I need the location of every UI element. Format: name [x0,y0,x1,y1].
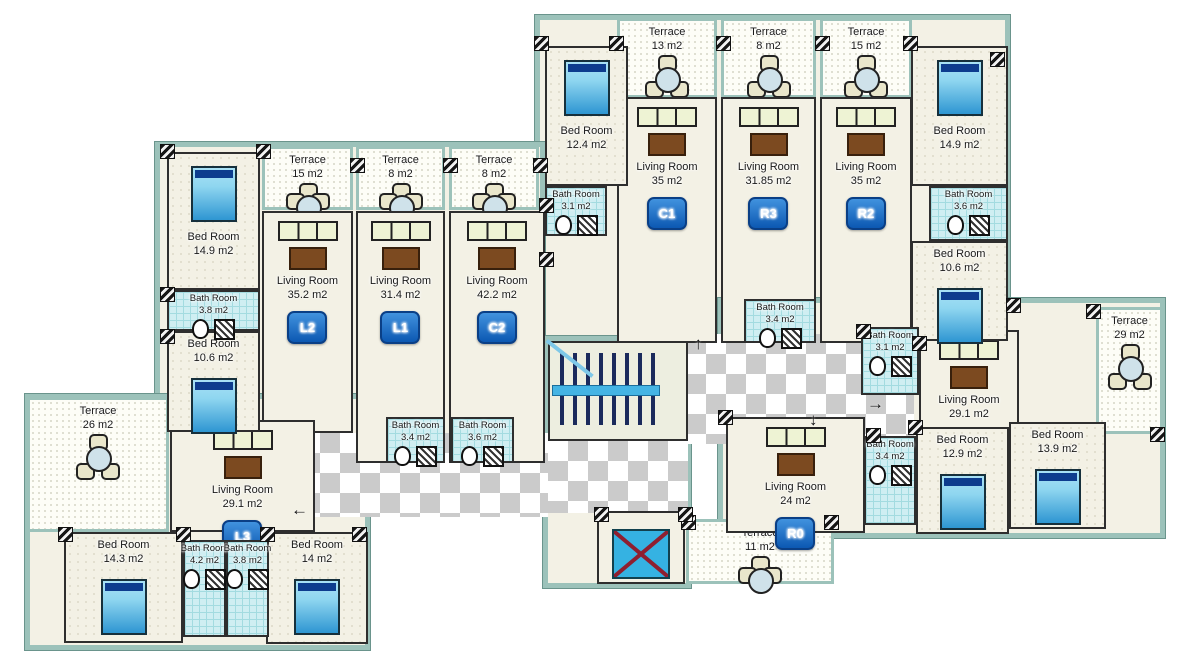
room-name: Living Room [277,275,338,289]
shower-icon [248,569,269,590]
room-name: Bed Room [188,231,240,245]
bed-furniture [564,56,610,120]
bath-furniture [192,319,235,340]
unit-badge-c1: C1 [647,197,687,230]
wall-column-hatch [350,158,365,173]
living-furniture [739,107,799,156]
room-name: Living Room [738,161,799,175]
terrace-table-icon [847,60,885,96]
wall-column-hatch [1006,298,1021,313]
room-label: Bath Room3.6 m2 [459,420,507,444]
toilet-icon [759,328,776,348]
room-area: 15 m2 [289,168,326,182]
room-name: Bath Room [552,189,600,201]
room-area: 29.1 m2 [938,408,999,422]
wall-column-hatch [160,329,175,344]
room-bath: Bath Room3.4 m2 [864,436,916,525]
room-area: 10.6 m2 [934,262,986,276]
wall-column-hatch [990,52,1005,67]
terrace-table-icon [289,188,327,208]
bed-furniture [191,162,237,226]
bath-furniture [869,356,912,377]
wall-column-hatch [443,158,458,173]
wall-column-hatch [594,507,609,522]
bed-icon [101,579,147,635]
room-name: Bed Room [188,338,240,352]
room-name: Bath Room [181,543,229,555]
room-area: 8 m2 [476,168,513,182]
room-name: Bed Room [291,539,343,553]
room-area: 13 m2 [649,40,686,54]
toilet-icon [192,319,209,339]
room-name: Bed Room [1032,429,1084,443]
room-area: 35 m2 [636,175,697,189]
room-label: Bath Room3.1 m2 [866,330,914,354]
wall-column-hatch [903,36,918,51]
table-icon [1118,356,1144,382]
room-area: 42.2 m2 [466,289,527,303]
bed-furniture [101,575,147,639]
wall-column-hatch [856,324,871,339]
room-area: 3.8 m2 [190,305,238,317]
room-living-r2: Living Room35 m2R2 [820,97,912,343]
toilet-icon [461,446,478,466]
wall-column-hatch [352,527,367,542]
room-area: 12.9 m2 [937,448,989,462]
wall-column-hatch [1086,304,1101,319]
room-name: Terrace [289,154,326,168]
toilet-icon [226,569,243,589]
room-bath: Bath Room3.6 m2 [929,186,1008,241]
bed-furniture [294,575,340,639]
shower-icon [416,446,437,467]
room-label: Bath Room3.6 m2 [945,189,993,213]
room-area: 3.1 m2 [866,342,914,354]
room-label: Bed Room10.6 m2 [934,248,986,276]
room-area: 3.4 m2 [392,432,440,444]
wall-column-hatch [815,36,830,51]
table-icon [86,446,112,472]
room-label: Terrace29 m2 [1111,315,1148,343]
room-bath: Bath Room3.4 m2 [386,417,445,463]
room-bath: Bath Room3.4 m2 [744,299,816,343]
room-area: 24 m2 [765,495,826,509]
room-bed: Bed Room14.3 m2 [64,532,183,643]
sofa-icon [836,107,896,127]
bath-furniture [947,215,990,236]
table-icon [748,568,774,594]
bed-icon [937,60,983,116]
living-furniture [278,221,338,270]
room-label: Bath Room3.4 m2 [756,302,804,326]
room-label: Bed Room12.4 m2 [561,125,613,153]
entry-arrow-icon: ↓ [809,410,818,430]
sofa-icon [637,107,697,127]
room-name: Terrace [649,26,686,40]
room-bath: Bath Room3.8 m2 [226,540,269,637]
unit-badge-r0: R0 [775,517,815,550]
terrace-table-icon [741,561,779,582]
bed-icon [564,60,610,116]
bed-furniture [937,284,983,348]
room-name: Terrace [382,154,419,168]
room-label: Terrace15 m2 [848,26,885,54]
stairs-handrail [552,385,660,396]
room-area: 35.2 m2 [277,289,338,303]
living-furniture [637,107,697,156]
wall-column-hatch [824,515,839,530]
shower-icon [891,356,912,377]
wall-column-hatch [256,144,271,159]
room-name: Terrace [750,26,787,40]
room-label: Living Room35 m2R2 [835,161,896,230]
sofa-icon [766,427,826,447]
room-area: 35 m2 [835,175,896,189]
room-name: Bath Room [224,543,272,555]
toilet-icon [947,215,964,235]
bath-furniture [869,465,912,486]
wall-column-hatch [160,287,175,302]
wall-column-hatch [866,428,881,443]
unit-badge-r2: R2 [846,197,886,230]
room-label: Bed Room14.9 m2 [934,125,986,153]
room-label: Living Room35.2 m2L2 [277,275,338,344]
unit-badge-c2: C2 [477,311,517,344]
living-furniture [467,221,527,270]
room-area: 3.4 m2 [756,314,804,326]
sofa-icon [371,221,431,241]
room-area: 31.85 m2 [738,175,799,189]
bath-furniture [461,446,504,467]
wall-column-hatch [718,410,733,425]
table-icon [655,67,681,93]
room-name: Living Room [212,484,273,498]
coffee-table-icon [777,453,815,476]
living-furniture [371,221,431,270]
room-terrace: Terrace8 m2 [356,146,445,210]
room-label: Terrace26 m2 [80,405,117,433]
room-name: Bed Room [934,248,986,262]
wall-column-hatch [1150,427,1165,442]
sofa-icon [739,107,799,127]
room-label: Bed Room10.6 m2 [188,338,240,366]
hallway-corridor [548,441,688,513]
room-living-l2: Living Room35.2 m2L2 [262,211,353,433]
room-name: Terrace [1111,315,1148,329]
coffee-table-icon [750,133,788,156]
room-label: Terrace8 m2 [750,26,787,54]
room-label: Bed Room14.3 m2 [98,539,150,567]
room-terrace: Terrace15 m2 [820,18,912,98]
room-name: Living Room [765,481,826,495]
unit-badge-r3: R3 [748,197,788,230]
room-name: Bath Room [945,189,993,201]
bath-furniture [226,569,269,590]
coffee-table-icon [224,456,262,479]
wall-column-hatch [539,252,554,267]
room-label: Bed Room14.9 m2 [188,231,240,259]
bath-furniture [394,446,437,467]
room-area: 14 m2 [291,553,343,567]
room-label: Bath Room3.1 m2 [552,189,600,213]
room-bed: Bed Room14.9 m2 [911,46,1008,186]
room-label: Living Room35 m2C1 [636,161,697,230]
room-bed: Bed Room14.9 m2 [167,152,260,290]
entry-arrow-icon: ↑ [694,334,703,354]
shower-icon [969,215,990,236]
room-area: 3.4 m2 [866,451,914,463]
room-label: Bed Room12.9 m2 [937,434,989,462]
room-label: Bath Room3.4 m2 [392,420,440,444]
room-area: 3.6 m2 [459,432,507,444]
floor-plan: Terrace13 m2Terrace8 m2Terrace15 m2Terra… [0,0,1200,665]
room-bath: Bath Room3.1 m2 [545,186,607,236]
shower-icon [781,328,802,349]
bed-furniture [940,470,986,534]
shower-icon [214,319,235,340]
wall-column-hatch [716,36,731,51]
room-bath: Bath Room3.6 m2 [451,417,514,463]
terrace-table-icon [382,188,420,208]
bed-icon [294,579,340,635]
room-label: Terrace13 m2 [649,26,686,54]
room-area: 14.3 m2 [98,553,150,567]
room-name: Living Room [466,275,527,289]
room-label: Bed Room14 m2 [291,539,343,567]
sofa-icon [467,221,527,241]
room-label: Living Room42.2 m2C2 [466,275,527,344]
coffee-table-icon [289,247,327,270]
wall-column-hatch [908,420,923,435]
room-area: 31.4 m2 [370,289,431,303]
toilet-icon [183,569,200,589]
room-area: 14.9 m2 [188,245,240,259]
room-area: 4.2 m2 [181,555,229,567]
toilet-icon [555,215,572,235]
room-area: 3.6 m2 [945,201,993,213]
coffee-table-icon [950,366,988,389]
toilet-icon [869,465,886,485]
room-area: 13.9 m2 [1032,443,1084,457]
room-name: Living Room [938,394,999,408]
entry-arrow-icon: → [867,394,884,414]
room-label: Living Room31.4 m2L1 [370,275,431,344]
room-label: Bath Room3.8 m2 [224,543,272,567]
room-area: 10.6 m2 [188,352,240,366]
room-label: Bed Room13.9 m2 [1032,429,1084,457]
room-name: Terrace [476,154,513,168]
room-terrace: Terrace8 m2 [721,18,816,98]
bed-icon [1035,469,1081,525]
wall-column-hatch [534,36,549,51]
wall-column-hatch [539,198,554,213]
room-label: Terrace8 m2 [382,154,419,182]
room-name: Bath Room [866,330,914,342]
room-terrace: Terrace29 m2 [1096,307,1163,434]
bed-icon [191,166,237,222]
room-terrace: Terrace13 m2 [617,18,717,98]
room-bed: Bed Room10.6 m2 [167,331,260,432]
room-area: 14.9 m2 [934,139,986,153]
room-area: 3.8 m2 [224,555,272,567]
bed-icon [937,288,983,344]
room-area: 3.1 m2 [552,201,600,213]
terrace-table-icon [648,60,686,96]
entry-arrow-icon: ← [291,500,308,520]
coffee-table-icon [382,247,420,270]
unit-badge-l1: L1 [380,311,420,344]
shower-icon [577,215,598,236]
room-bed: Bed Room13.9 m2 [1009,422,1106,529]
room-label: Terrace8 m2 [476,154,513,182]
living-furniture [836,107,896,156]
room-name: Living Room [370,275,431,289]
room-area: 29.1 m2 [212,498,273,512]
room-bath: Bath Room3.8 m2 [167,290,260,331]
room-living-r0: Living Room24 m2R0 [726,417,865,533]
room-name: Terrace [848,26,885,40]
room-label: Terrace15 m2 [289,154,326,182]
room-area: 26 m2 [80,419,117,433]
room-name: Bath Room [392,420,440,432]
bed-furniture [1035,465,1081,529]
room-name: Bath Room [756,302,804,314]
living-furniture [766,427,826,476]
wall-column-hatch [58,527,73,542]
sofa-icon [278,221,338,241]
bed-icon [191,378,237,434]
wall-column-hatch [533,158,548,173]
room-area: 12.4 m2 [561,139,613,153]
bed-furniture [191,374,237,438]
room-terrace: Terrace8 m2 [449,146,539,210]
room-name: Terrace [80,405,117,419]
room-area: 29 m2 [1111,329,1148,343]
table-icon [757,67,783,93]
terrace-table-icon [750,60,788,96]
elevator-cross-icon [612,529,670,579]
terrace-table-icon [1111,349,1149,387]
table-icon [854,67,880,93]
room-bed: Bed Room12.9 m2 [916,427,1009,534]
room-name: Living Room [835,161,896,175]
unit-badge-l2: L2 [287,311,327,344]
terrace-table-icon [79,439,117,477]
wall-column-hatch [260,527,275,542]
wall-column-hatch [160,144,175,159]
wall-column-hatch [609,36,624,51]
wall-column-hatch [912,336,927,351]
room-bed: Bed Room12.4 m2 [545,46,628,186]
toilet-icon [869,356,886,376]
wall-column-hatch [176,527,191,542]
room-bath: Bath Room4.2 m2 [183,540,226,637]
room-name: Bath Room [190,293,238,305]
toilet-icon [394,446,411,466]
room-bed: Bed Room14 m2 [266,532,368,644]
coffee-table-icon [648,133,686,156]
bath-furniture [555,215,598,236]
coffee-table-icon [847,133,885,156]
room-area: 15 m2 [848,40,885,54]
bath-furniture [759,328,802,349]
room-terrace: Terrace26 m2 [27,397,169,532]
room-name: Bath Room [459,420,507,432]
room-elevator [597,511,685,584]
room-name: Bed Room [561,125,613,139]
bed-icon [940,474,986,530]
room-label: Bath Room4.2 m2 [181,543,229,567]
room-bed: Bed Room10.6 m2 [911,241,1008,341]
shower-icon [483,446,504,467]
bath-furniture [183,569,226,590]
shower-icon [205,569,226,590]
room-terrace: Terrace15 m2 [262,146,353,210]
room-living-c1: Living Room35 m2C1 [617,97,717,343]
wall-column-hatch [678,507,693,522]
room-label: Living Room24 m2R0 [765,481,826,550]
room-name: Bed Room [98,539,150,553]
coffee-table-icon [478,247,516,270]
room-area: 8 m2 [382,168,419,182]
bed-furniture [937,56,983,120]
room-name: Living Room [636,161,697,175]
room-label: Living Room31.85 m2R3 [738,161,799,230]
room-stairs [548,341,688,441]
room-name: Bed Room [937,434,989,448]
room-name: Bed Room [934,125,986,139]
shower-icon [891,465,912,486]
room-label: Bath Room3.8 m2 [190,293,238,317]
room-area: 8 m2 [750,40,787,54]
terrace-table-icon [475,188,513,208]
